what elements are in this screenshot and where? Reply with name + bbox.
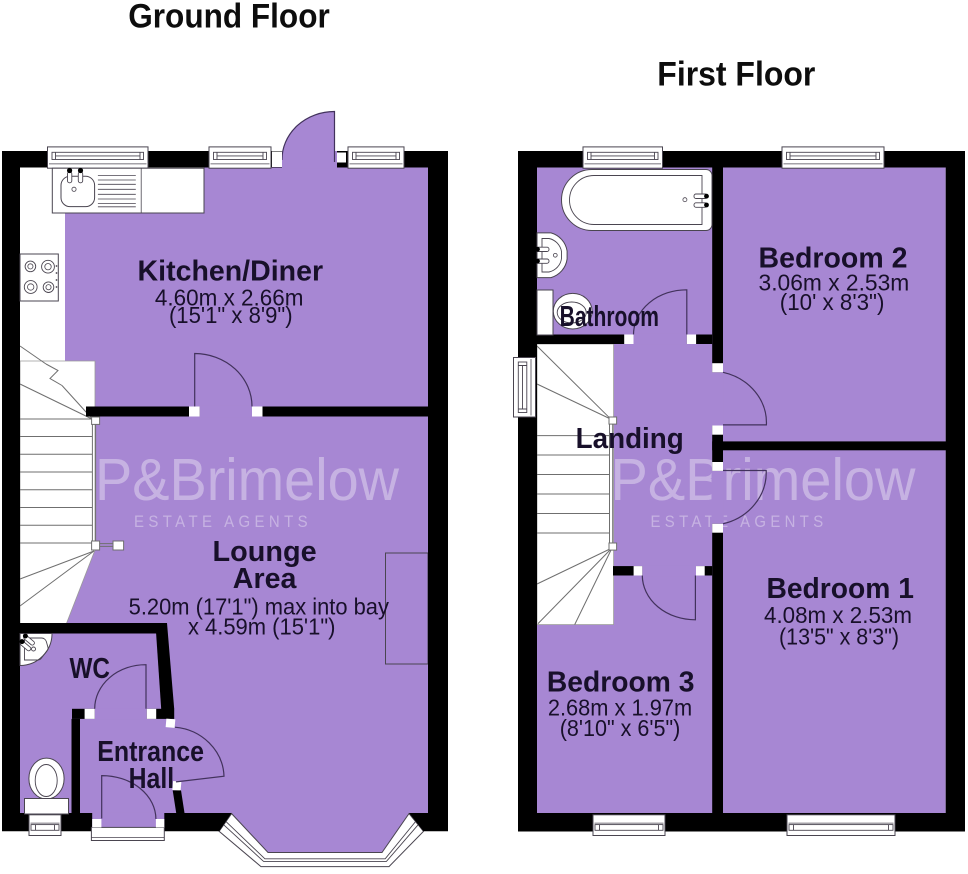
svg-text:(15'1" x 8'9"): (15'1" x 8'9") bbox=[169, 302, 293, 328]
svg-text:WC: WC bbox=[69, 653, 110, 685]
svg-text:x 4.59m (15'1"): x 4.59m (15'1") bbox=[188, 613, 336, 639]
svg-text:Landing: Landing bbox=[576, 423, 684, 455]
svg-text:(10' x 8'3"): (10' x 8'3") bbox=[780, 289, 885, 315]
svg-text:ESTATE AGENTS: ESTATE AGENTS bbox=[134, 512, 312, 531]
svg-text:Hall: Hall bbox=[129, 763, 175, 795]
svg-text:Area: Area bbox=[233, 563, 297, 595]
svg-text:Bathroom: Bathroom bbox=[560, 301, 659, 333]
svg-text:Bedroom 1: Bedroom 1 bbox=[766, 573, 914, 605]
svg-text:Kitchen/Diner: Kitchen/Diner bbox=[138, 256, 324, 288]
svg-text:Ground Floor: Ground Floor bbox=[128, 0, 330, 36]
svg-text:P&Brimelow: P&Brimelow bbox=[95, 447, 399, 513]
svg-text:P&Brimelow: P&Brimelow bbox=[611, 447, 916, 513]
svg-text:(13'5" x 8'3"): (13'5" x 8'3") bbox=[779, 624, 899, 650]
svg-text:ESTATE AGENTS: ESTATE AGENTS bbox=[651, 512, 828, 531]
svg-text:(8'10" x 6'5"): (8'10" x 6'5") bbox=[560, 715, 681, 741]
svg-text:First Floor: First Floor bbox=[657, 56, 815, 94]
